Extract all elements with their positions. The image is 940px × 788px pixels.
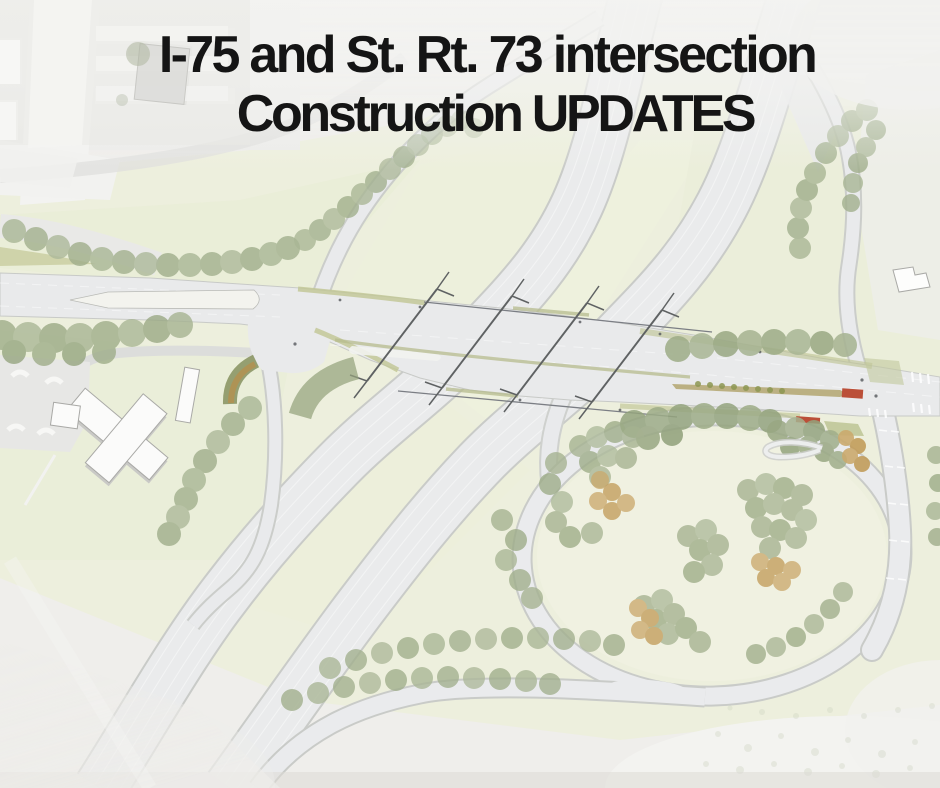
svg-text:I-75 and St. Rt. 73 intersecti: I-75 and St. Rt. 73 intersection bbox=[159, 26, 815, 84]
svg-text:Construction UPDATES: Construction UPDATES bbox=[237, 85, 755, 143]
